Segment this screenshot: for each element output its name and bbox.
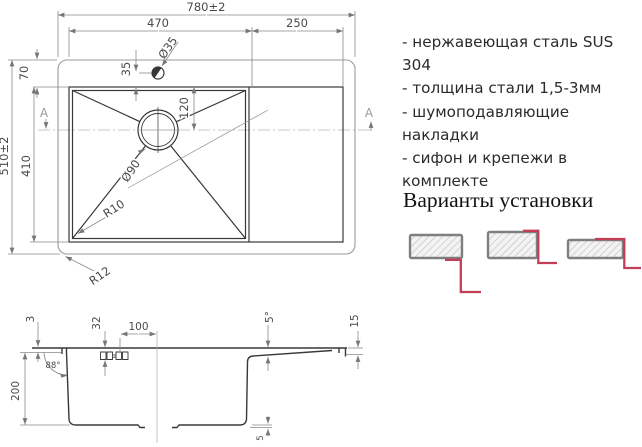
top-view-drawing: 780±2 470 250 Ø35 35 70 510±2 410 120 Ø9… xyxy=(0,0,400,300)
section-dimension-lines xyxy=(20,322,363,436)
dim-total-width: 780±2 xyxy=(187,0,226,14)
sink-rim-outline xyxy=(58,60,355,254)
spec-list: - нержавеющая сталь SUS 304 - толщина ст… xyxy=(402,31,640,193)
install-option-topmount xyxy=(568,239,641,268)
dim-bowl-depth: 410 xyxy=(19,155,33,177)
section-marker-a-left: A xyxy=(40,106,49,120)
drain-hole xyxy=(138,107,178,153)
dim-faucet-diameter: Ø35 xyxy=(155,34,180,61)
faucet-hole xyxy=(152,67,164,79)
section-marker-a-right: A xyxy=(365,106,374,120)
dim-bowl-width: 470 xyxy=(147,16,169,30)
drain-clip-detail xyxy=(101,352,129,360)
dim-bottom-step: 5 xyxy=(256,435,266,440)
dim-inner-radius: R10 xyxy=(101,197,128,221)
dim-rim-offset: 70 xyxy=(17,66,31,81)
section-view-drawing: 3 88° 200 32 100 5° 15 5 xyxy=(0,300,390,447)
install-option-undermount xyxy=(410,235,481,292)
dim-faucet-offset: 35 xyxy=(119,62,133,77)
countertop-profile xyxy=(445,260,481,292)
dim-edge-height: 15 xyxy=(349,314,361,327)
angle-arrow xyxy=(60,374,68,378)
dim-wall-angle: 88° xyxy=(45,361,60,371)
dim-drain-diameter: Ø90 xyxy=(118,157,143,184)
dim-wing-width: 250 xyxy=(286,16,308,30)
spec-item: - нержавеющая сталь SUS 304 xyxy=(402,31,640,77)
sink-section-profile xyxy=(32,348,347,428)
dim-clip-depth: 32 xyxy=(91,316,103,329)
install-options-title: Варианты установки xyxy=(403,188,642,213)
dim-total-depth: 510±2 xyxy=(0,137,11,176)
dim-clip-distance: 100 xyxy=(128,321,148,333)
install-option-flushmount xyxy=(488,231,557,263)
spec-item: - сифон и крепежи в комплекте xyxy=(402,147,640,193)
spec-item: - толщина стали 1,5-3мм xyxy=(402,77,640,100)
dimension-lines xyxy=(8,11,371,271)
install-options-diagrams xyxy=(400,225,642,310)
spec-item: - шумоподавляющие накладки xyxy=(402,101,640,147)
dim-board-slope: 5° xyxy=(264,311,276,323)
dim-rim-lip: 3 xyxy=(25,316,37,323)
sink-spec-sheet: 780±2 470 250 Ø35 35 70 510±2 410 120 Ø9… xyxy=(0,0,642,447)
dim-bowl-depth-section: 200 xyxy=(10,381,22,401)
dim-drain-offset: 120 xyxy=(177,97,191,119)
dim-outer-radius: R12 xyxy=(86,264,113,288)
